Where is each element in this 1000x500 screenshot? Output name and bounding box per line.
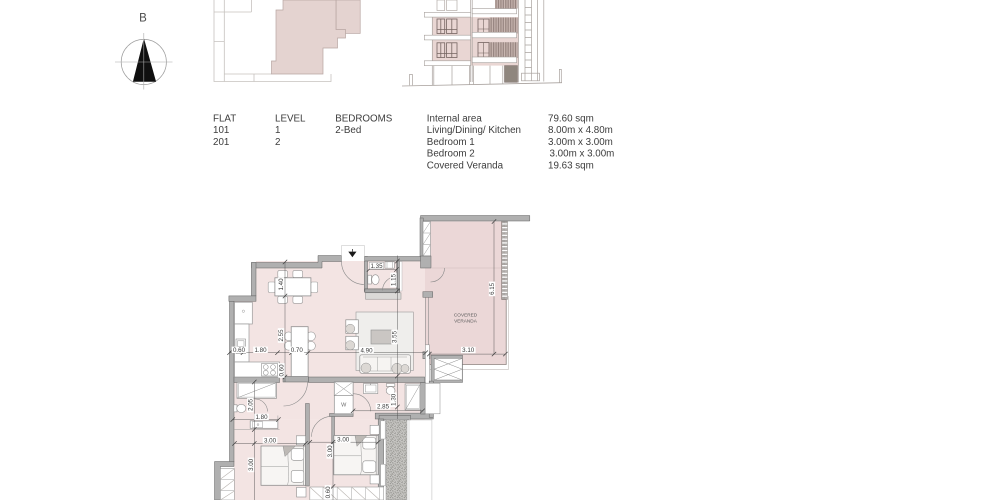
svg-text:3.00: 3.00 [327,445,334,458]
svg-text:Bedroom 2: Bedroom 2 [427,149,475,160]
svg-text:101: 101 [213,125,229,136]
svg-text:BEDROOMS: BEDROOMS [335,113,393,124]
svg-text:Covered Veranda: Covered Veranda [427,161,504,172]
svg-text:0.60: 0.60 [279,364,286,377]
svg-text:1.15: 1.15 [391,273,398,286]
svg-text:Living/Dining/ Kitchen: Living/Dining/ Kitchen [427,125,521,136]
svg-text:1.35: 1.35 [370,263,383,270]
svg-text:3.10: 3.10 [462,347,475,354]
svg-text:B: B [139,13,147,25]
svg-text:0.60: 0.60 [233,347,246,354]
svg-text:2: 2 [275,137,280,148]
svg-text:4.90: 4.90 [360,347,373,354]
svg-text:6.15: 6.15 [489,282,496,295]
svg-text:2.85: 2.85 [377,403,390,410]
svg-text:0.60: 0.60 [325,486,332,499]
svg-text:2-Bed: 2-Bed [335,125,361,136]
svg-text:2.55: 2.55 [278,329,285,342]
svg-text:FLAT: FLAT [213,113,236,124]
svg-text:1.30: 1.30 [391,393,398,406]
svg-text:201: 201 [213,137,229,148]
svg-text:1.80: 1.80 [255,414,268,421]
svg-text:Bedroom 1: Bedroom 1 [427,137,475,148]
svg-text:1: 1 [275,125,280,136]
svg-text:0.70: 0.70 [291,347,304,354]
svg-text:3.00m x 3.00m: 3.00m x 3.00m [548,137,613,148]
svg-text:1.80: 1.80 [254,347,267,354]
svg-text:2.05: 2.05 [248,398,255,411]
svg-text:3.00: 3.00 [264,437,277,444]
svg-text:COVERED: COVERED [454,312,478,317]
svg-text:Internal area: Internal area [427,113,483,124]
svg-text:W: W [341,403,347,409]
svg-text:3.00m x 3.00m: 3.00m x 3.00m [550,149,615,160]
svg-text:19.63 sqm: 19.63 sqm [548,161,594,172]
svg-text:3.00: 3.00 [248,458,255,471]
svg-text:79.60 sqm: 79.60 sqm [548,113,594,124]
svg-text:3.55: 3.55 [392,330,399,343]
svg-text:LEVEL: LEVEL [275,113,306,124]
svg-text:VERANDA: VERANDA [454,318,478,323]
svg-text:1.40: 1.40 [278,278,285,291]
svg-text:8.00m x 4.80m: 8.00m x 4.80m [548,125,613,136]
svg-text:3.00: 3.00 [337,437,350,444]
